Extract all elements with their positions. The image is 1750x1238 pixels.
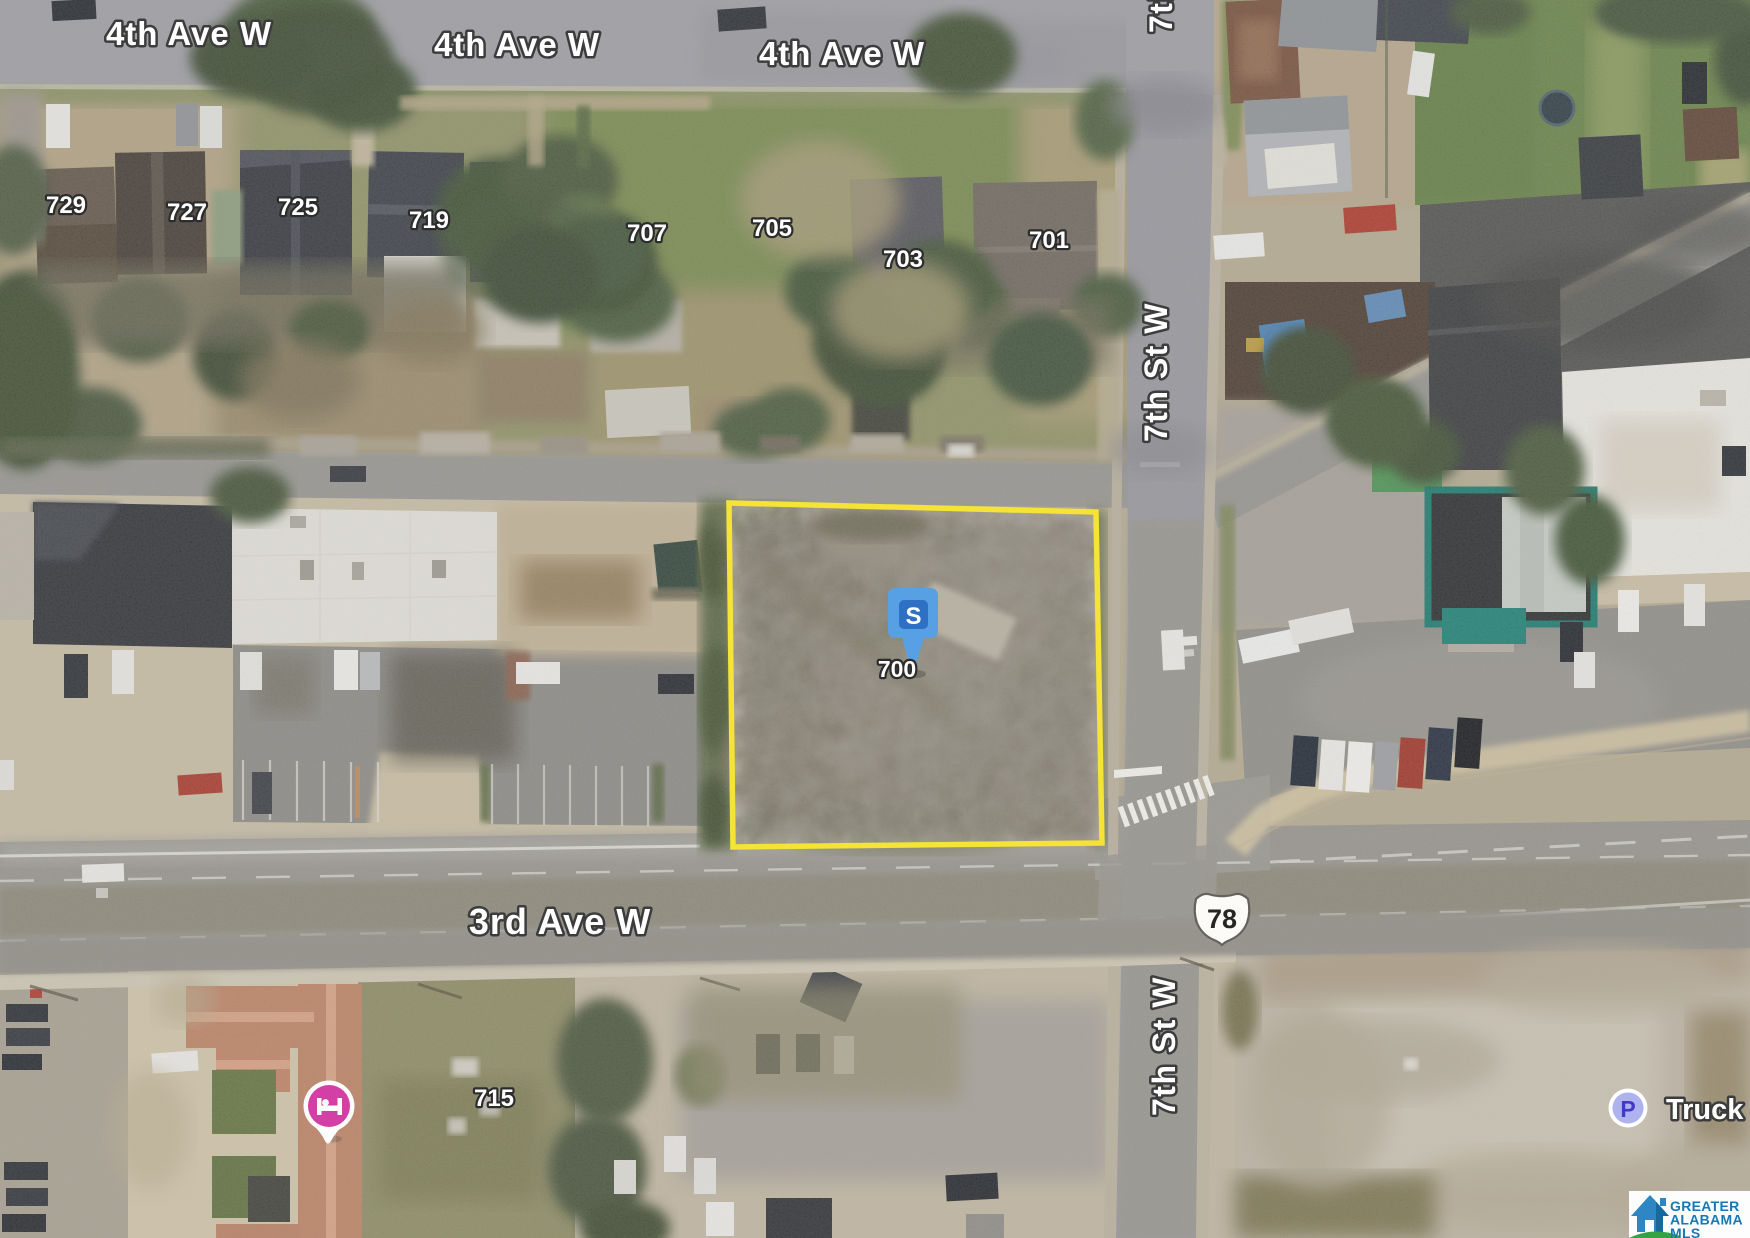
svg-text:S: S [905,603,921,630]
svg-text:7th St W: 7th St W [1138,302,1174,442]
svg-text:715: 715 [474,1085,514,1112]
svg-text:7th St W: 7th St W [1143,0,1179,33]
svg-text:4th Ave W: 4th Ave W [434,26,600,63]
svg-text:78: 78 [1207,904,1237,934]
svg-text:700: 700 [878,656,916,682]
svg-text:MLS: MLS [1670,1225,1700,1238]
svg-text:705: 705 [752,215,792,242]
svg-text:4th Ave W: 4th Ave W [759,35,925,72]
svg-text:3rd Ave W: 3rd Ave W [469,901,651,942]
svg-text:7th St W: 7th St W [1146,976,1182,1116]
svg-text:725: 725 [278,194,318,221]
svg-text:729: 729 [46,192,86,219]
svg-text:701: 701 [1029,227,1069,254]
svg-text:727: 727 [167,199,207,226]
svg-text:707: 707 [627,220,667,247]
svg-text:719: 719 [409,207,449,234]
svg-text:4th Ave W: 4th Ave W [106,15,272,52]
svg-text:703: 703 [883,246,923,273]
svg-text:Truck P: Truck P [1666,1094,1750,1126]
svg-text:P: P [1620,1096,1635,1122]
